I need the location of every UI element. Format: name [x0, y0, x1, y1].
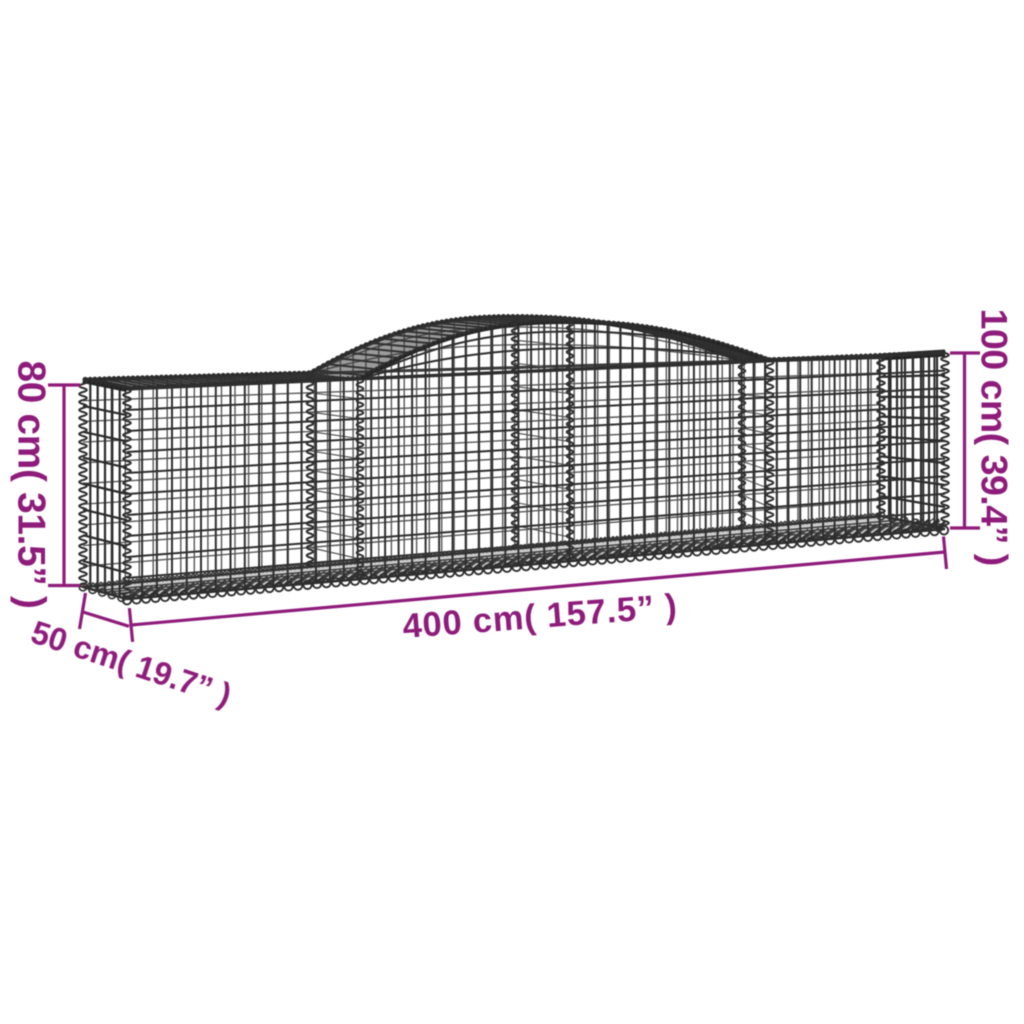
- svg-text:80 cm( 31.5” ): 80 cm( 31.5” ): [10, 361, 53, 609]
- svg-text:100 cm( 39.4” ): 100 cm( 39.4” ): [974, 309, 1016, 566]
